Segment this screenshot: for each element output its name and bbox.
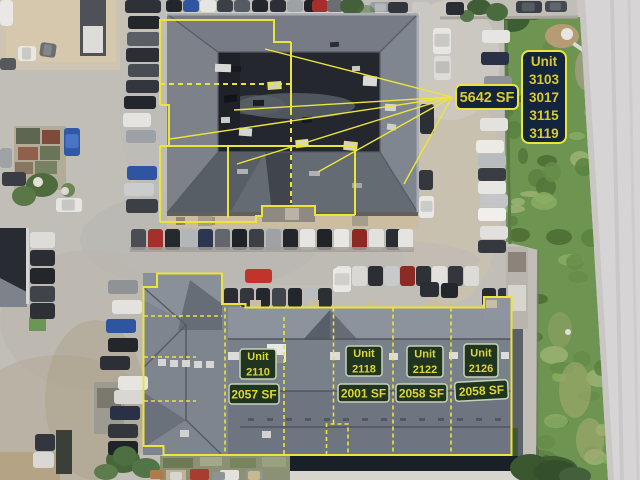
svg-text:3119: 3119 (529, 126, 558, 141)
svg-text:Unit: Unit (353, 348, 375, 360)
svg-text:2001 SF: 2001 SF (341, 386, 386, 400)
svg-text:2122: 2122 (413, 364, 437, 376)
svg-text:Unit: Unit (414, 349, 436, 361)
svg-text:Unit: Unit (470, 348, 492, 360)
svg-text:5642 SF: 5642 SF (460, 90, 515, 106)
svg-text:2126: 2126 (469, 363, 493, 375)
svg-text:2058 SF: 2058 SF (458, 383, 504, 399)
svg-text:3103: 3103 (529, 72, 560, 87)
svg-text:3115: 3115 (529, 108, 559, 123)
svg-text:3017: 3017 (529, 90, 559, 105)
svg-text:Unit: Unit (531, 54, 558, 69)
svg-text:2058 SF: 2058 SF (399, 386, 444, 400)
svg-text:2110: 2110 (246, 367, 270, 379)
svg-text:2118: 2118 (352, 364, 376, 376)
svg-text:Unit: Unit (247, 351, 269, 363)
svg-text:2057 SF: 2057 SF (231, 387, 276, 401)
